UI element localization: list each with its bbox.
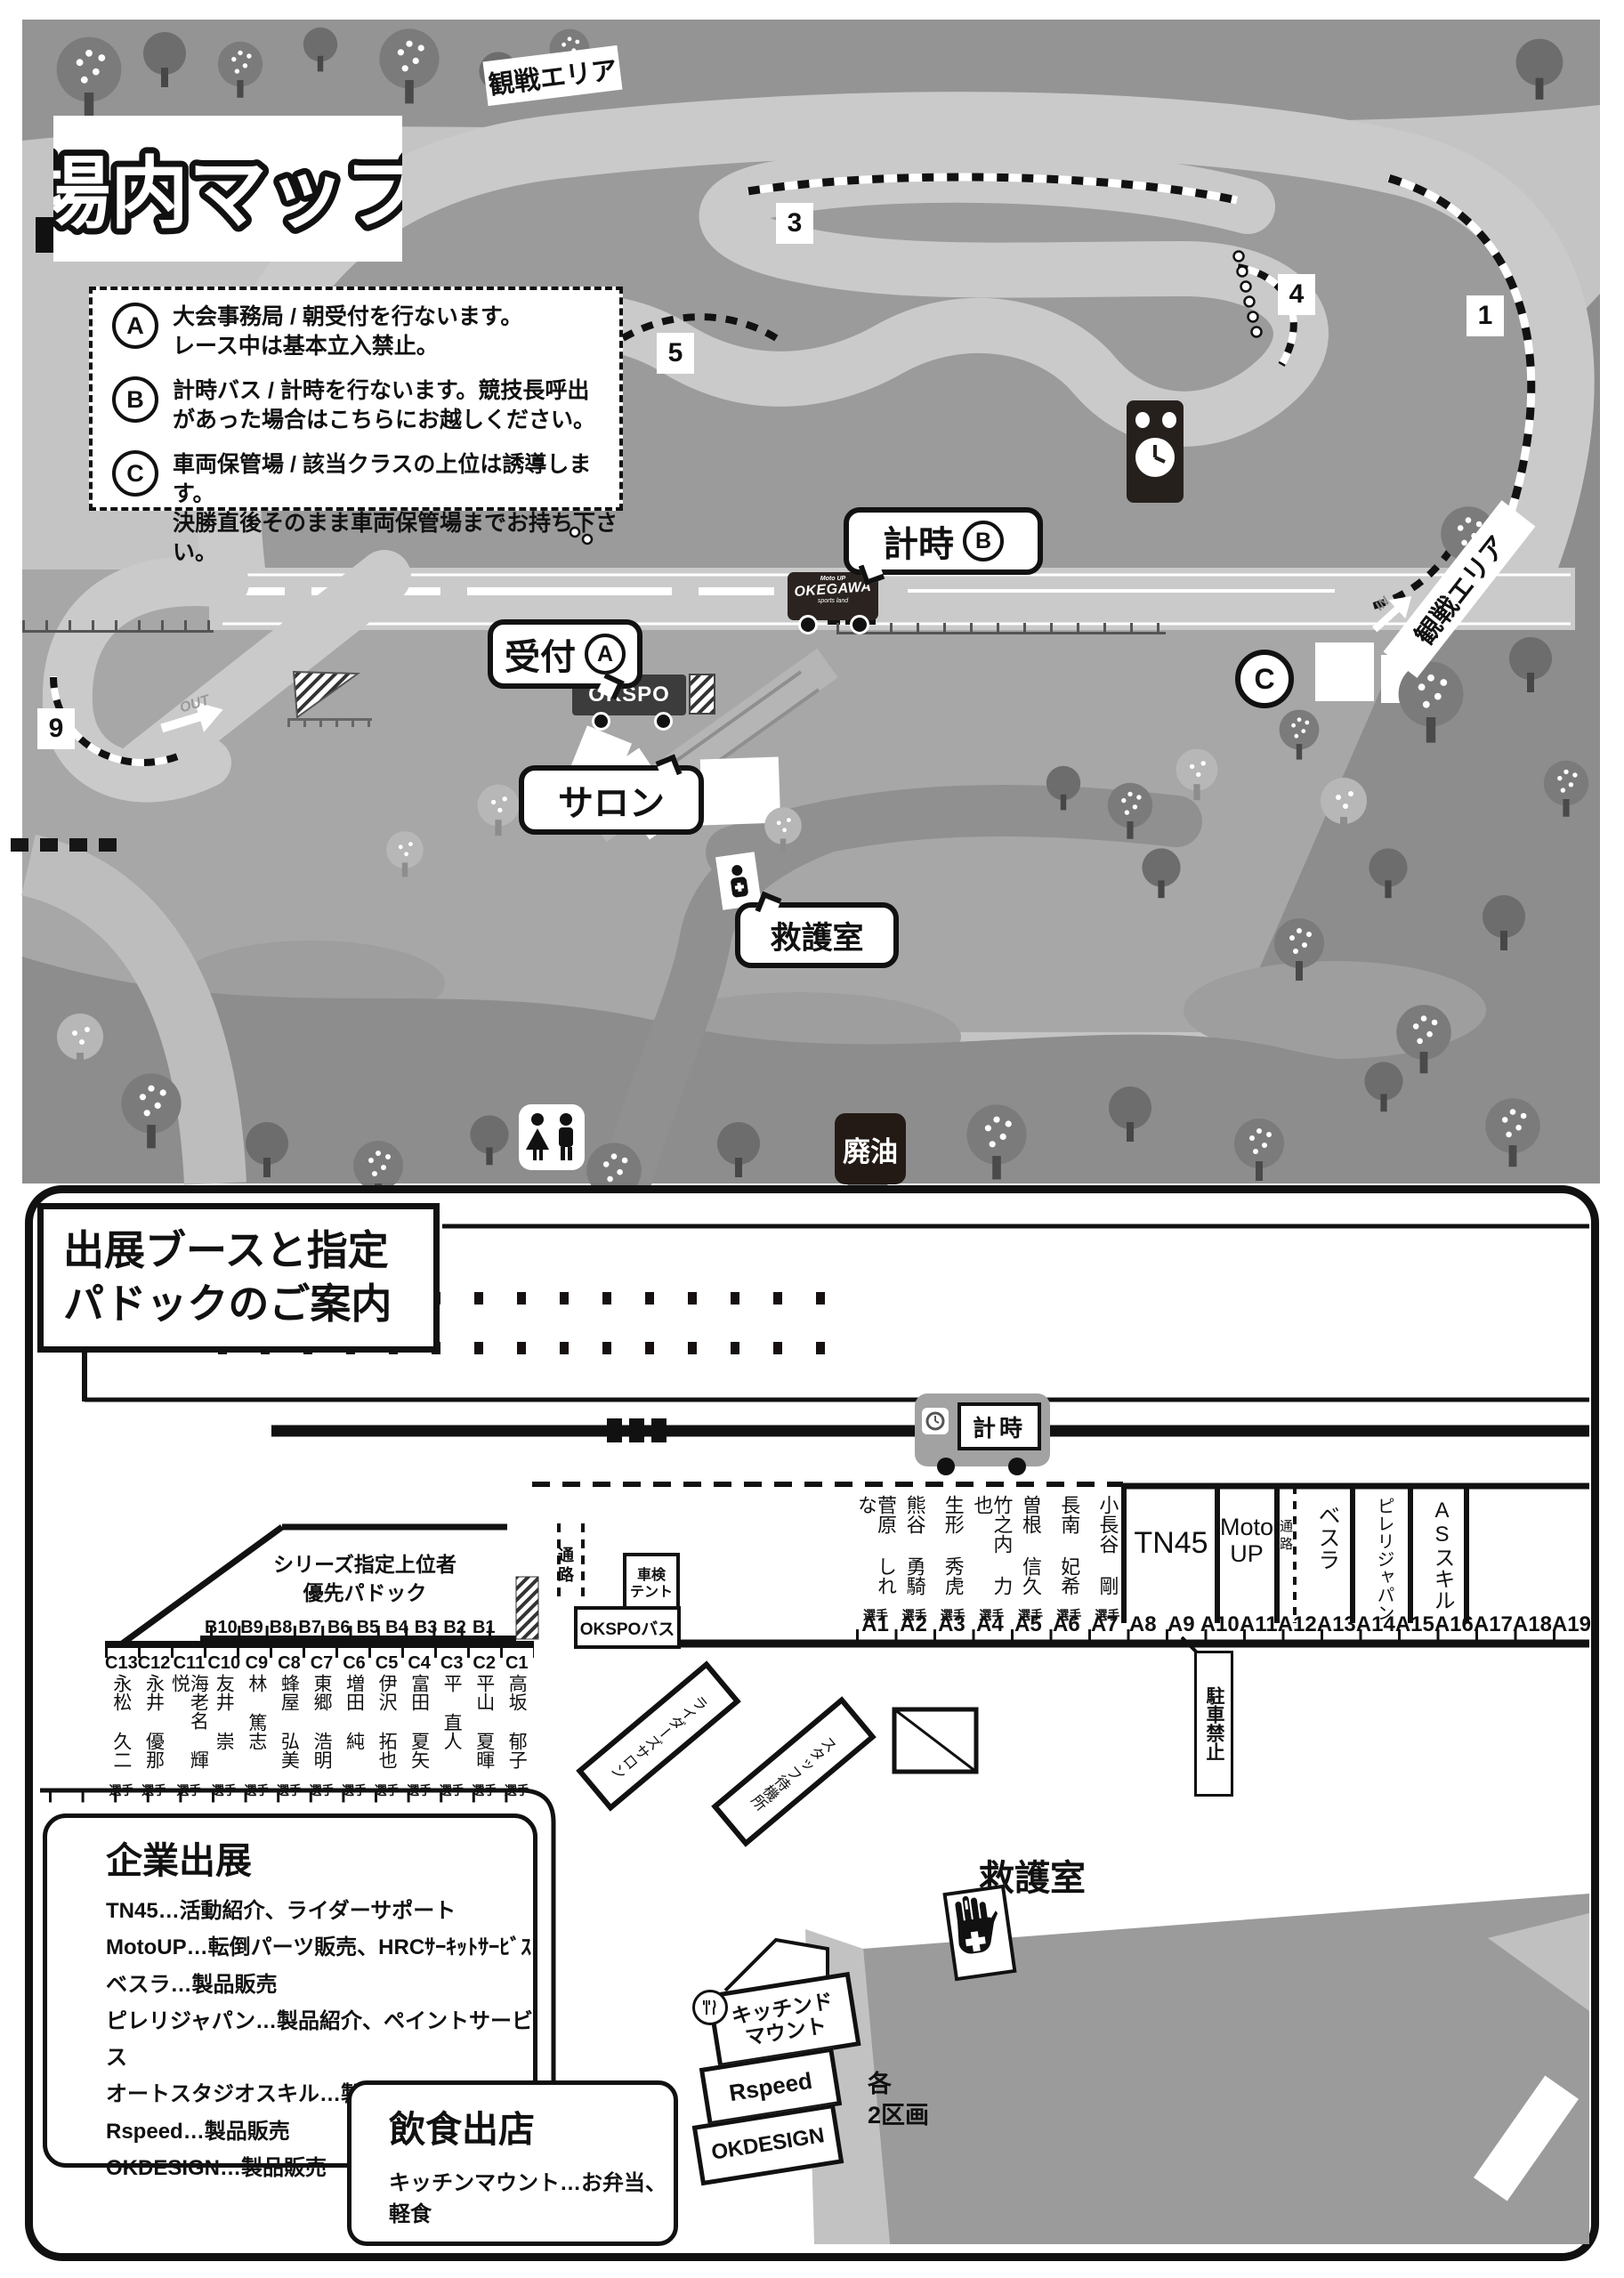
rider-tag: 選手 [440, 1781, 465, 1799]
rider-name: 平山 夏暉 [475, 1674, 494, 1779]
bus-wheel-icon [850, 615, 869, 634]
c-rider: C4 富田 夏矢 選手 [403, 1653, 436, 1799]
b-slot: B7 [295, 1618, 325, 1638]
c-slot: C7 [311, 1653, 334, 1674]
toilet-icon [519, 1104, 585, 1170]
a-slot: A5 [1009, 1612, 1047, 1637]
c-slot: C5 [376, 1653, 399, 1674]
timing-callout: 計時 B [844, 507, 1043, 575]
b-slot-labels: B10B9B8B7B6B5B4B3B2B1 [205, 1618, 498, 1638]
bus-wheel-icon [1008, 1458, 1026, 1475]
plots-line2: 2区画 [868, 2102, 929, 2129]
bus-wheel-icon [654, 712, 673, 731]
a-slot: A4 [971, 1612, 1009, 1637]
exhibitor-item: TN45…活動紹介、ライダーサポート [106, 1893, 533, 1929]
title-box: 場内マップ [53, 116, 402, 262]
rider-tag: 選手 [472, 1781, 497, 1799]
rider-name: 伊沢 拓也 [377, 1674, 396, 1779]
legend: A 大会事務局 / 朝受付を行ないます。 レース中は基本立入禁止。 B 計時バス… [89, 287, 623, 511]
plots-label: 各 2区画 [868, 2069, 929, 2131]
food-panel-title: 飲食出店 [389, 2099, 674, 2153]
timing-bus-sign: 計時 [957, 1402, 1041, 1450]
title-art: 場内マップ [53, 116, 402, 262]
legend-item-b: B 計時バス / 計時を行ないます。競技長呼出 があった場合はこちらにお越しくだ… [112, 376, 619, 435]
rider-tag: 選手 [407, 1781, 432, 1799]
a-slot-labels: A1A2A3A4A5A6A7A8A9A10A11A12A13A14A15A16A… [856, 1612, 1591, 1637]
priority-line2: 優先パドック [303, 1581, 427, 1604]
reception-callout: 受付 A [488, 619, 642, 689]
rider-tag: 選手 [176, 1781, 201, 1799]
a-rider: 長南 妃希 選手 [1050, 1495, 1088, 1624]
legend-item-c: C 車両保管場 / 該当クラスの上位は誘導します。 決勝直後そのまま車両保管場ま… [112, 450, 619, 568]
c-rider: C12 永井 優那 選手 [138, 1653, 171, 1799]
salon-callout: サロン [519, 765, 704, 835]
b-slot: B3 [411, 1618, 440, 1638]
timing-label: 計時 [883, 515, 954, 567]
a-rider: 熊谷 勇騎 選手 [895, 1495, 933, 1624]
rider-name: 富田 夏矢 [410, 1674, 429, 1779]
vendor-corridor: 通路 [1276, 1519, 1295, 1599]
a-slot: A18 [1513, 1612, 1552, 1637]
rider-name: 生形 秀虎 [943, 1495, 963, 1603]
priority-line1: シリーズ指定上位者 [273, 1553, 456, 1576]
c-rider: C8 蜂屋 弘美 選手 [273, 1653, 306, 1799]
waste-oil-badge: 廃油 [835, 1113, 906, 1184]
rider-name: 友井 崇 [214, 1674, 233, 1779]
vendor-vesrah: ベスラ [1312, 1504, 1344, 1614]
c-rider: C9 林 篤志 選手 [240, 1653, 273, 1799]
c-slot: C8 [278, 1653, 301, 1674]
a-slot: A7 [1086, 1612, 1124, 1637]
legend-a-line1: 大会事務局 / 朝受付を行ないます。 [173, 304, 522, 329]
first-aid-hand-card [942, 1885, 1016, 1982]
rider-name: 高坂 郁子 [507, 1674, 526, 1779]
b-slot: B1 [469, 1618, 498, 1638]
vendor-motoup: Moto UP [1219, 1515, 1274, 1567]
rider-tag: 選手 [212, 1781, 237, 1799]
rider-tag: 選手 [505, 1781, 529, 1799]
c-slot: C11 [174, 1653, 206, 1674]
legend-key-b: B [112, 376, 158, 423]
c-rider: C13 永松 久二 選手 [105, 1653, 138, 1799]
c-slot: C9 [246, 1653, 269, 1674]
rider-name: 永井 優那 [145, 1674, 164, 1779]
fence [22, 620, 214, 633]
bus-wheel-icon [592, 712, 610, 731]
rider-name: 長南 妃希 [1059, 1495, 1079, 1603]
b-slot: B8 [266, 1618, 295, 1638]
c-rider: C2 平山 夏暉 選手 [468, 1653, 501, 1799]
a-rider: 菅原 しれな 選手 [856, 1495, 895, 1624]
c-slot: C1 [505, 1653, 529, 1674]
c-rider: C3 平 直人 選手 [435, 1653, 468, 1799]
corner-1: 1 [1466, 295, 1504, 336]
vendor-motoup-line2: UP [1230, 1540, 1264, 1567]
a-rider: 生形 秀虎 選手 [933, 1495, 972, 1624]
rider-tag: 選手 [277, 1781, 302, 1799]
rider-name: 林 篤志 [247, 1674, 266, 1779]
corner-9: 9 [37, 708, 75, 749]
a-slot: A13 [1317, 1612, 1356, 1637]
b-slot: B4 [383, 1618, 412, 1638]
a-slot: A10 [1200, 1612, 1240, 1637]
corner-5: 5 [657, 333, 694, 374]
timing-bus: 計時 [915, 1393, 1050, 1466]
salon-label: サロン [558, 774, 665, 826]
a-slot: A9 [1162, 1612, 1200, 1637]
c-slot: C10 [207, 1653, 240, 1674]
rider-tag: 選手 [244, 1781, 269, 1799]
a-slot: A17 [1474, 1612, 1513, 1637]
exhibitor-item: ベスラ…製品販売 [106, 1967, 533, 2003]
page-title: 場内マップ [53, 149, 402, 238]
c-slot: C2 [473, 1653, 496, 1674]
legend-item-a: A 大会事務局 / 朝受付を行ないます。 レース中は基本立入禁止。 [112, 303, 619, 361]
no-parking-sign: 駐車禁止 [1194, 1651, 1233, 1797]
guide-title-line1: 出展ブースと指定 [63, 1224, 433, 1278]
rider-name: 竹之内 力也 [972, 1495, 1011, 1603]
priority-paddock-label: シリーズ指定上位者 優先パドック [258, 1550, 472, 1607]
a-slot: A16 [1434, 1612, 1474, 1637]
b-slot: B10 [205, 1618, 238, 1638]
a-slot: A11 [1240, 1612, 1278, 1637]
legend-b-line2: があった場合はこちらにお越しください。 [173, 408, 595, 432]
c-rider-columns: C13 永松 久二 選手 C12 永井 優那 選手 C11 海老名 輝悦 選手 … [105, 1653, 533, 1799]
plots-line1: 各 [868, 2071, 892, 2097]
c-rider: C7 東郷 浩明 選手 [305, 1653, 338, 1799]
b-slot: B2 [440, 1618, 470, 1638]
c-slot: C3 [440, 1653, 464, 1674]
c-rider: C6 増田 純 選手 [338, 1653, 371, 1799]
rider-tag: 選手 [109, 1781, 133, 1799]
rider-name: 平 直人 [442, 1674, 461, 1779]
exhibitor-item: MotoUP…転倒パーツ販売、HRCｻｰｷｯﾄｻｰﾋﾞｽ [106, 1929, 533, 1966]
fork-knife-icon [692, 1990, 728, 2025]
exhibitors-title: 企業出展 [106, 1830, 533, 1884]
vendor-as-skill: ASスキル [1426, 1498, 1458, 1616]
c-slot: C13 [105, 1653, 138, 1674]
a-slot: A1 [856, 1612, 894, 1637]
okspo-bus-box: OKSPOバス [574, 1606, 681, 1649]
clock-tower-icon [1127, 400, 1184, 503]
corner-4: 4 [1278, 274, 1315, 315]
b-slot: B9 [238, 1618, 267, 1638]
c-slot: C6 [343, 1653, 366, 1674]
reception-label: 受付 [505, 628, 576, 680]
a-slot: A12 [1278, 1612, 1317, 1637]
vendor-pirelli: ピレリジャパン [1371, 1497, 1397, 1623]
rider-name: 永松 久二 [112, 1674, 131, 1779]
rider-name: 熊谷 勇騎 [905, 1495, 925, 1603]
rider-name: 菅原 しれな [856, 1495, 895, 1603]
fence [287, 718, 372, 727]
corner-3: 3 [776, 203, 813, 244]
rider-tag: 選手 [342, 1781, 367, 1799]
bus-wheel-icon [798, 615, 818, 634]
bus-wheel-icon [937, 1458, 955, 1475]
legend-c-line2: 決勝直後そのまま車両保管場までお持ち下さい。 [173, 511, 618, 565]
rider-name: 小長谷 剛 [1097, 1495, 1117, 1603]
vendor-tn45: TN45 [1132, 1526, 1210, 1561]
rider-name: 曽根 信久 [1021, 1495, 1040, 1603]
rider-tag: 選手 [141, 1781, 166, 1799]
guide-title-line2: パドックのご案内 [63, 1278, 433, 1331]
legend-b-line1: 計時バス / 計時を行ないます。競技長呼出 [173, 378, 589, 403]
legend-a-line2: レース中は基本立入禁止。 [173, 334, 439, 359]
c-rider: C11 海老名 輝悦 選手 [170, 1653, 207, 1799]
corridor-label: 通路 [553, 1547, 577, 1609]
a-slot: A3 [933, 1612, 971, 1637]
c-slot: C12 [138, 1653, 171, 1674]
rider-name: 増田 純 [345, 1674, 364, 1779]
first-aid-label: 救護室 [770, 913, 863, 958]
first-aid-hand-icon [947, 1889, 1005, 1970]
rider-name: 東郷 浩明 [312, 1674, 331, 1779]
reception-key: A [585, 634, 626, 675]
rider-name: 海老名 輝悦 [170, 1674, 207, 1779]
vendor-motoup-line1: Moto [1220, 1514, 1273, 1540]
a-rider: 曽根 信久 選手 [1011, 1495, 1049, 1624]
a-rider-columns: 菅原 しれな 選手 熊谷 勇騎 選手 生形 秀虎 選手 竹之内 力也 選手 曽根… [856, 1495, 1127, 1624]
inspection-tent-line1: 車検 [637, 1567, 666, 1584]
c-point-marker: C [1235, 650, 1294, 708]
guide-title: 出展ブースと指定 パドックのご案内 [37, 1203, 440, 1353]
food-panel-item: キッチンマウント…お弁当、軽食 [389, 2165, 674, 2227]
a-slot: A2 [894, 1612, 933, 1637]
c-rider: C10 友井 崇 選手 [207, 1653, 240, 1799]
legend-key-a: A [112, 303, 158, 349]
rider-name: 蜂屋 弘美 [279, 1674, 298, 1779]
rider-tag: 選手 [309, 1781, 334, 1799]
inspection-tent-line2: テント [630, 1584, 673, 1601]
c-rider: C1 高坂 郁子 選手 [500, 1653, 533, 1799]
a-slot: A19 [1552, 1612, 1591, 1637]
first-aid-callout: 救護室 [735, 902, 899, 968]
venue-map-poster: 場内マップ 観戦エリア 観戦エリア A 大会事務局 / 朝受付を行ないます。 レ… [0, 0, 1624, 2278]
clock-icon [922, 1408, 949, 1434]
c-slot: C4 [408, 1653, 431, 1674]
a-slot: A15 [1395, 1612, 1434, 1637]
fence [836, 623, 1166, 634]
b-slot: B6 [324, 1618, 353, 1638]
b-slot: B5 [353, 1618, 383, 1638]
legend-c-line1: 車両保管場 / 該当クラスの上位は誘導します。 [173, 452, 591, 506]
legend-key-c: C [112, 450, 158, 497]
a-rider: 小長谷 剛 選手 [1088, 1495, 1127, 1624]
food-panel: 飲食出店 キッチンマウント…お弁当、軽食 [347, 2080, 678, 2246]
timing-key: B [963, 521, 1004, 561]
rider-tag: 選手 [375, 1781, 400, 1799]
a-slot: A6 [1047, 1612, 1086, 1637]
a-rider: 竹之内 力也 選手 [972, 1495, 1011, 1624]
exhibitor-item: ピレリジャパン…製品紹介、ペイントサービス [106, 2003, 533, 2077]
first-aid-card-icon [715, 852, 762, 910]
a-slot: A8 [1124, 1612, 1162, 1637]
c-rider: C5 伊沢 拓也 選手 [370, 1653, 403, 1799]
